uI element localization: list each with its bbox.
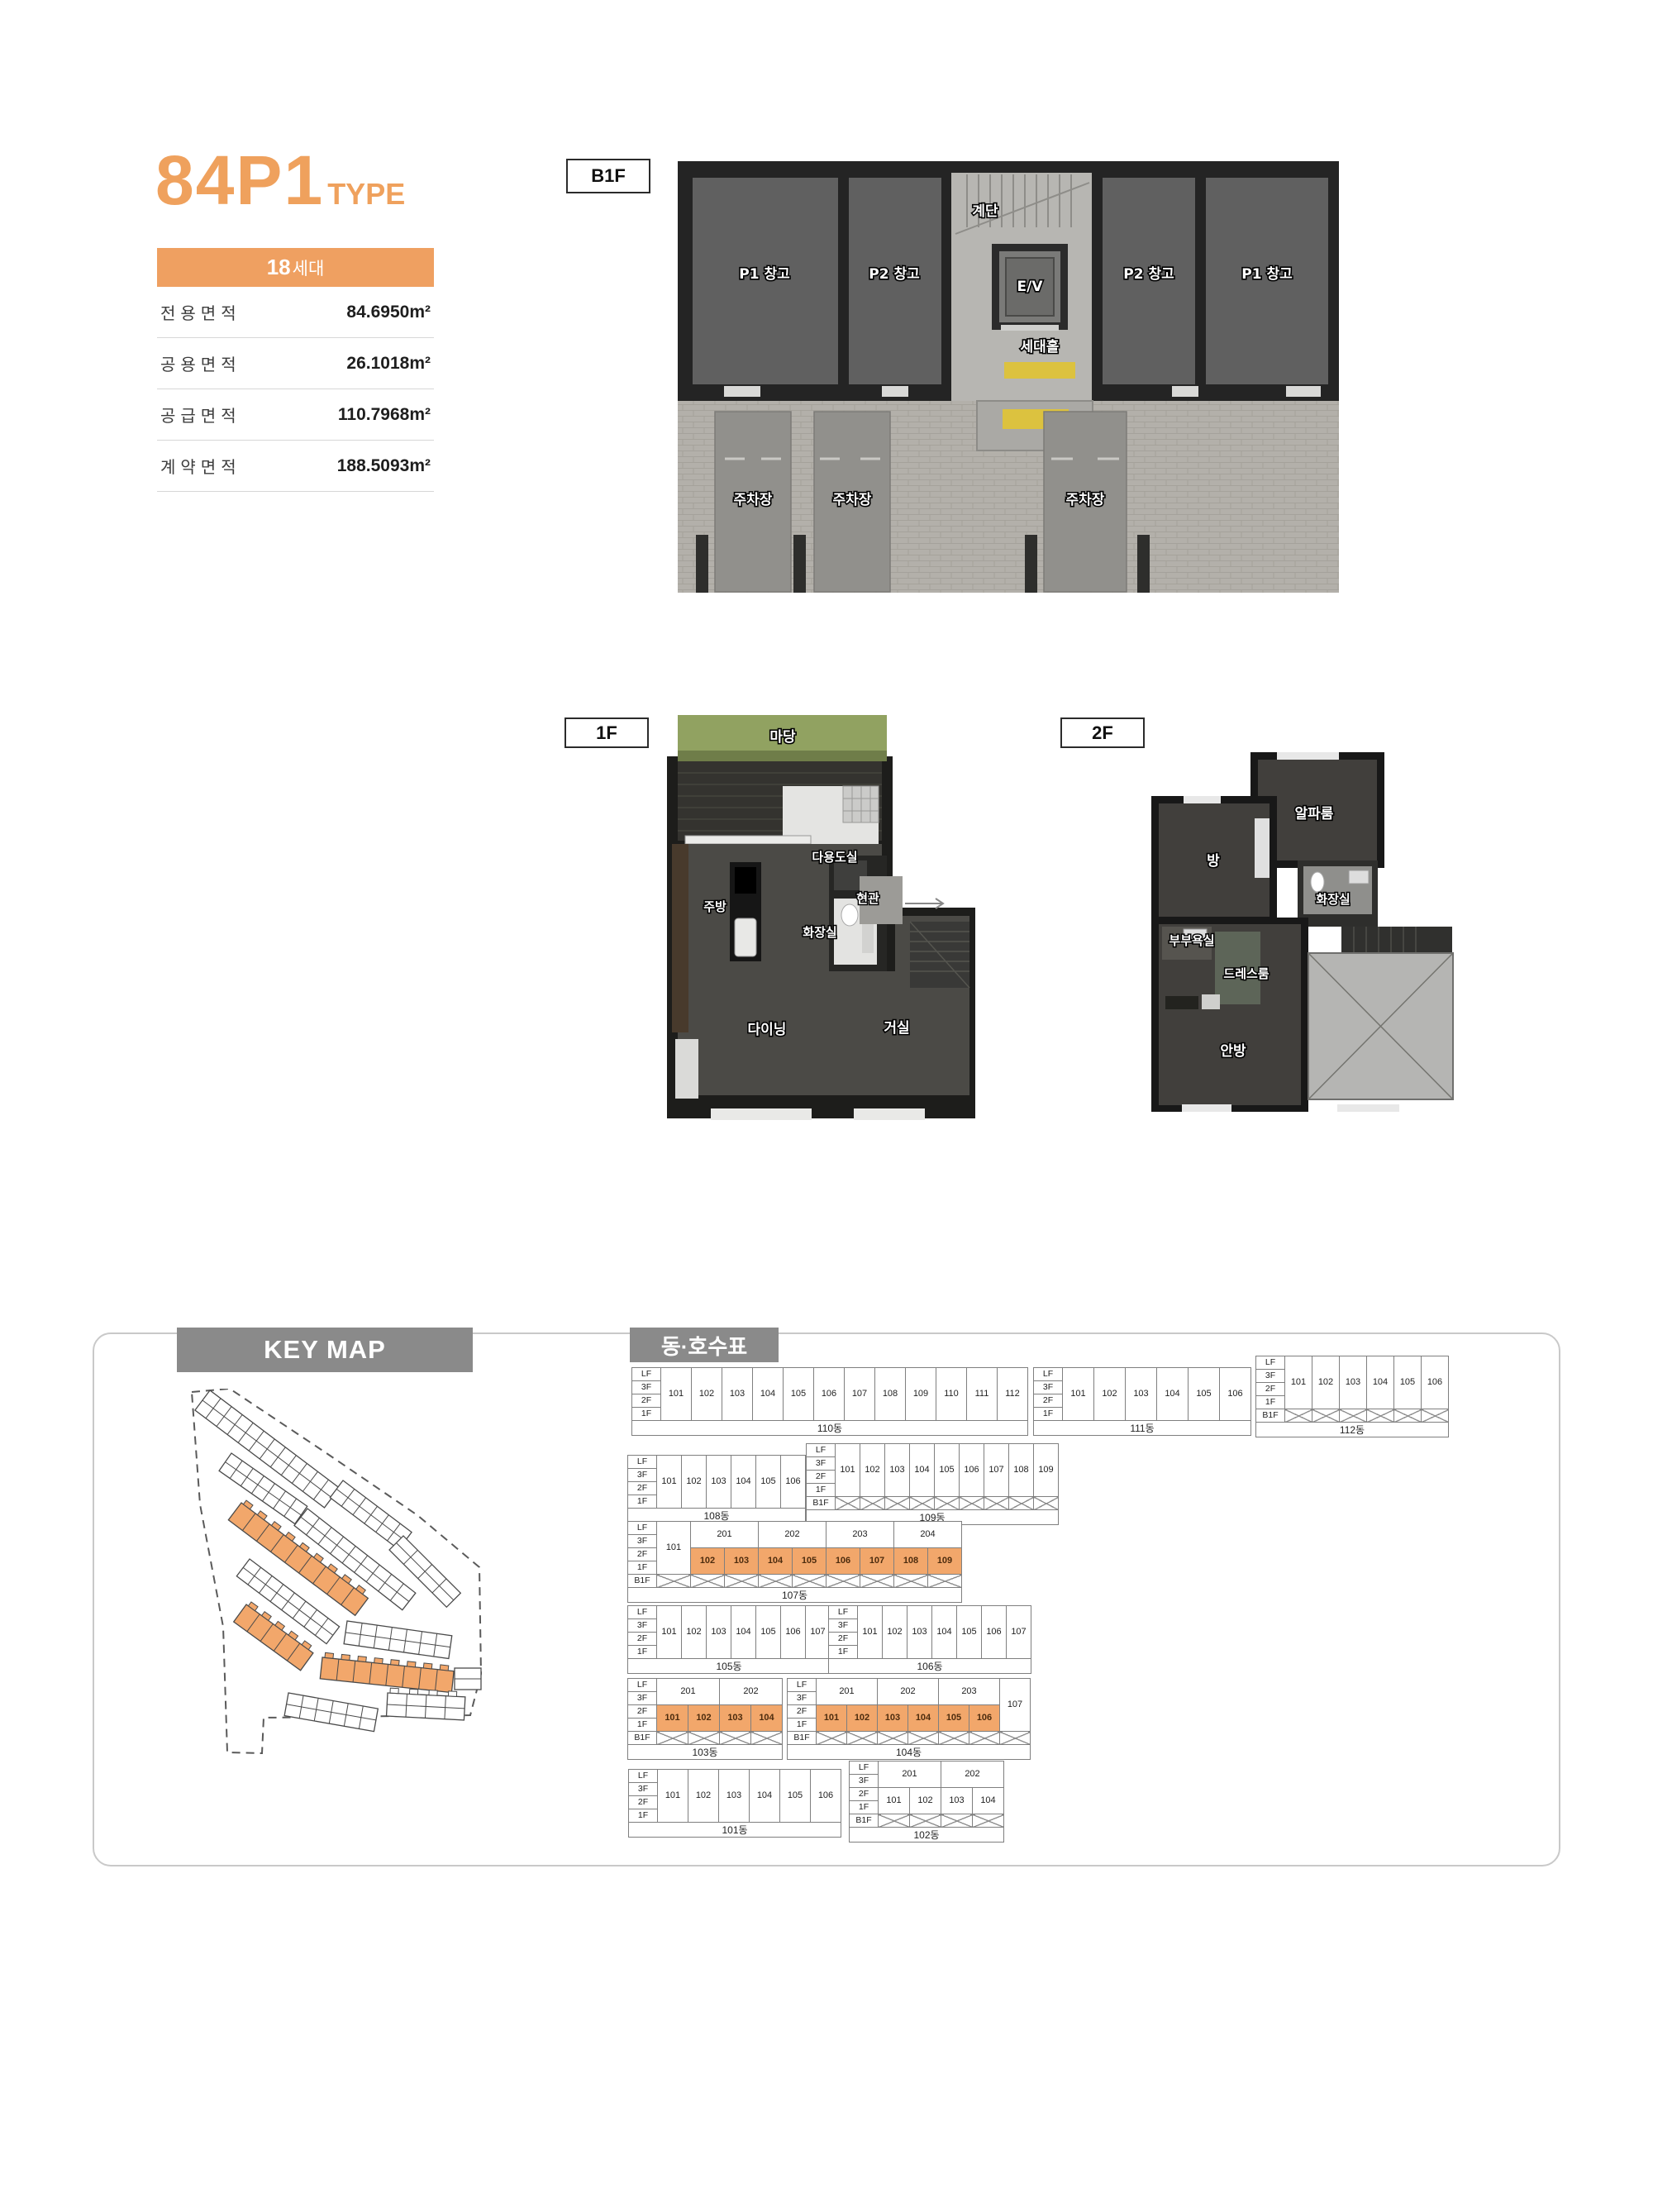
label-couple-bath: 부부욕실 [1169,933,1214,948]
crossed-cell [1009,1497,1034,1510]
unit-cell: 201 [657,1679,720,1705]
unit-cell: 108 [875,1368,906,1421]
area-value: 84.6950m² [346,303,431,322]
label-room: 방 [1207,853,1220,870]
building-name: 105동 [628,1659,831,1674]
area-row: 공용면적 26.1018m² [157,338,434,389]
unit-cell: 105 [784,1368,814,1421]
floor-label: 2F [807,1471,836,1484]
floor-label: 2F [1034,1394,1063,1408]
unit-cell: 105 [1394,1356,1422,1409]
crossed-cell [847,1732,878,1745]
window-gap [1286,386,1321,397]
floor-label: LF [628,1456,657,1469]
unit-cell: 201 [817,1679,878,1705]
unit-cell: 102 [1094,1368,1126,1421]
crossed-cell [657,1575,691,1588]
floor-label: 2F [829,1633,858,1646]
floor-label: LF [632,1368,661,1381]
building-name: 104동 [788,1745,1031,1760]
floor-label: LF [829,1606,858,1619]
area-label: 공급면적 [160,403,241,427]
building-name: 106동 [829,1659,1031,1674]
unit-cell: 104 [1367,1356,1394,1409]
unit-cell: 105 [756,1456,781,1509]
unit-cell: 104 [910,1444,935,1497]
household-count-unit: 세대 [293,250,325,288]
window-gap [1337,1104,1399,1112]
unit-cell: 102 [1312,1356,1340,1409]
floor-label: 1F [1034,1408,1063,1421]
type-title-suffix: TYPE [327,177,405,212]
area-row: 계약면적 188.5093m² [157,441,434,492]
unit-cell: 110 [936,1368,967,1421]
brochure-page: 84P1 TYPE 18 세대 전용면적 84.6950m² 공용면적 26.1… [0,0,1653,2212]
area-table: 전용면적 84.6950m² 공용면적 26.1018m² 공급면적 110.7… [157,287,434,492]
unit-cell: 204 [894,1522,962,1548]
unit-cell: 107 [845,1368,875,1421]
area-value: 26.1018m² [346,354,431,374]
unit-table-112: LF1011021031041051063F2F1FB1F112동 [1255,1356,1449,1437]
unit-cell: 109 [1034,1444,1059,1497]
unit-cell: 102 [691,1548,725,1575]
floor-label: 2F [628,1705,657,1719]
unit-cell: 107 [1007,1606,1031,1659]
label-p2-left: P2 창고 [869,266,920,283]
unit-cell: 101 [858,1606,883,1659]
floor-label: 1F [628,1495,657,1509]
label-hall: 세대홀 [1021,338,1060,355]
site-keymap [177,1389,541,1839]
toilet [1311,872,1324,892]
unit-table-102: LF2012023F2F1011021031041FB1F102동 [849,1761,1004,1843]
crossed-cell [1394,1409,1422,1423]
unit-table-104: LF2012022031073F2F1011021031041051061FB1… [787,1678,1031,1760]
unit-cell: 105 [756,1606,781,1659]
keymap-building [455,1668,481,1690]
crossed-cell [751,1732,783,1745]
crossed-cell [939,1732,969,1745]
building-name: 103동 [628,1745,783,1760]
unit-cell: 106 [1422,1356,1449,1409]
unit-cell: 105 [793,1548,826,1575]
unit-cell: 101 [817,1705,847,1732]
elevator-sill [1001,325,1059,331]
type-title: 84P1 TYPE [155,145,405,215]
floor-label: 3F [632,1381,661,1394]
area-label: 전용면적 [160,300,241,324]
label-parking1: 주차장 [734,492,773,508]
crossed-cell [860,1497,885,1510]
floor-label: B1F [850,1814,879,1828]
floor-label: 3F [1034,1381,1063,1394]
unit-cell: 101 [657,1522,691,1575]
window-sill [685,836,811,844]
crossed-cell [688,1732,720,1745]
unit-cell: 104 [731,1456,756,1509]
window-gap [724,386,760,397]
b1f-floorplan: 계단 P1 창고 P2 창고 E/V P2 창고 P1 창고 세대홀 주차장 주… [678,161,1339,595]
unit-cell: 202 [878,1679,939,1705]
floor-label: 3F [1256,1370,1285,1383]
label-dress: 드레스룸 [1223,966,1269,981]
unit-cell: 101 [1285,1356,1312,1409]
unit-cell: 104 [731,1606,756,1659]
crossed-cell [1340,1409,1367,1423]
floor-label: B1F [1256,1409,1285,1423]
unit-cell: 107 [806,1606,831,1659]
crossed-cell [1312,1409,1340,1423]
unit-cell: 104 [750,1770,780,1823]
entry-arrow-icon [905,899,943,908]
floor-label: 2F [632,1394,661,1408]
floor-label: 3F [850,1775,879,1788]
floor-label: 1F [629,1809,658,1823]
floor-label: 3F [628,1535,657,1548]
floor-label: LF [788,1679,817,1692]
crossed-cell [720,1732,751,1745]
unit-table-109: LF1011021031041051061071081093F2F1FB1F10… [806,1443,1059,1525]
unit-cell: 102 [688,1705,720,1732]
crossed-cell [878,1732,908,1745]
unit-cell: 104 [908,1705,939,1732]
unit-table-header: 동·호수표 [630,1328,779,1362]
unit-cell: 105 [957,1606,982,1659]
keymap-building [284,1693,378,1732]
crossed-cell [908,1732,939,1745]
unit-cell: 106 [811,1770,841,1823]
unit-table-110: LF1011021031041051061071081091101111123F… [631,1367,1028,1436]
label-stairs: 계단 [972,203,998,220]
unit-cell: 103 [1126,1368,1157,1421]
cabinet [1202,994,1220,1009]
unit-cell: 103 [907,1606,932,1659]
unit-cell: 107 [860,1548,894,1575]
crossed-cell [885,1497,910,1510]
storage-lower-left [675,1039,698,1099]
floor-label: LF [628,1522,657,1535]
building-name: 111동 [1034,1421,1251,1436]
floor-label: 3F [807,1457,836,1471]
unit-cell: 102 [847,1705,878,1732]
unit-cell: 105 [939,1705,969,1732]
unit-cell: 202 [720,1679,783,1705]
floor-label: 1F [628,1561,657,1575]
keymap-building [387,1688,466,1720]
unit-cell: 101 [657,1456,682,1509]
crossed-cell [860,1575,894,1588]
unit-cell: 103 [725,1548,759,1575]
sink [735,918,756,956]
unit-cell: 105 [780,1770,811,1823]
unit-cell: 201 [691,1522,759,1548]
unit-cell: 103 [878,1705,908,1732]
floor-label: 3F [829,1619,858,1633]
building-name: 107동 [628,1588,962,1603]
floor-label: 2F [628,1548,657,1561]
sink [1349,870,1369,884]
unit-cell: 107 [1000,1679,1031,1732]
unit-cell: 109 [906,1368,936,1421]
label-parking3: 주차장 [1066,492,1105,508]
unit-cell: 102 [860,1444,885,1497]
label-kitchen: 주방 [703,899,726,914]
window-gap [1182,1104,1231,1112]
floor-label: 1F [807,1484,836,1497]
window-gap [854,1108,925,1120]
floor-tag-2f: 2F [1060,717,1145,748]
floor-label: 3F [788,1692,817,1705]
unit-cell: 203 [826,1522,894,1548]
crossed-cell [1422,1409,1449,1423]
unit-cell: 104 [932,1606,957,1659]
window-gap [882,386,908,397]
building-name: 101동 [629,1823,841,1838]
floor-label: 2F [628,1482,657,1495]
unit-cell: 106 [814,1368,845,1421]
crossed-cell [759,1575,793,1588]
area-value: 110.7968m² [338,405,431,425]
crossed-cell [1367,1409,1394,1423]
label-p1-right: P1 창고 [1241,266,1293,283]
label-dining: 다이닝 [748,1022,787,1038]
label-utility: 다용도실 [812,850,857,865]
crossed-cell [836,1497,860,1510]
crossed-cell [1000,1732,1031,1745]
keymap-building [344,1621,452,1659]
floor-label: 1F [628,1646,657,1659]
crossed-cell [984,1497,1009,1510]
unit-cell: 103 [720,1705,751,1732]
unit-table-101: LF1011021031041051063F2F1F101동 [628,1769,841,1838]
unit-cell: 101 [1063,1368,1094,1421]
label-p2-right: P2 창고 [1123,266,1174,283]
keymap-unit-panel: KEY MAP 동·호수표 LF101102103104105106107108… [93,1332,1560,1866]
household-count-number: 18 [267,248,291,287]
unit-cell: 103 [941,1788,973,1814]
floor-label: 3F [628,1469,657,1482]
floor-label: 1F [788,1719,817,1732]
floor-tag-b1f: B1F [566,159,650,193]
crossed-cell [928,1575,962,1588]
unit-cell: 103 [1340,1356,1367,1409]
site-buildings [195,1390,481,1732]
window-gap [1184,796,1221,803]
unit-cell: 101 [657,1705,688,1732]
crossed-cell [935,1497,960,1510]
unit-cell: 102 [682,1456,707,1509]
unit-cell: 201 [879,1761,941,1788]
unit-cell: 101 [836,1444,860,1497]
floor-label: B1F [628,1575,657,1588]
label-bath: 화장실 [803,925,836,940]
unit-table-103: LF2012023F2F1011021031041FB1F103동 [627,1678,783,1760]
unit-cell: 102 [688,1770,719,1823]
household-count-badge: 18 세대 [157,248,434,287]
unit-cell: 106 [826,1548,860,1575]
crossed-cell [826,1575,860,1588]
unit-table-108: LF1011021031041051063F2F1F108동 [627,1455,806,1523]
unit-cell: 104 [751,1705,783,1732]
unit-cell: 106 [1220,1368,1251,1421]
unit-cell: 103 [719,1770,750,1823]
floor-label: 2F [629,1796,658,1809]
unit-cell: 106 [960,1444,984,1497]
unit-cell: 103 [722,1368,753,1421]
label-master: 안방 [1220,1043,1246,1060]
crossed-cell [894,1575,928,1588]
unit-table-107: LF1012012022032043F2F1021031041051061071… [627,1521,962,1603]
floor-label: 2F [628,1633,657,1646]
floor-label: 3F [628,1619,657,1633]
f1-floorplan: 마당 다용도실 주방 현관 화장실 다이닝 거실 [667,715,975,1120]
unit-cell: 105 [1189,1368,1220,1421]
unit-table-106: LF1011021031041051061073F2F1F106동 [828,1605,1031,1674]
floor-label: B1F [807,1497,836,1510]
crossed-cell [817,1732,847,1745]
label-living: 거실 [884,1020,909,1037]
crossed-cell [910,1814,941,1828]
crossed-cell [1285,1409,1312,1423]
unit-cell: 103 [885,1444,910,1497]
unit-cell: 108 [1009,1444,1034,1497]
crossed-cell [879,1814,910,1828]
unit-table-111: LF1011021031041051063F2F1F111동 [1033,1367,1251,1436]
unit-cell: 107 [984,1444,1009,1497]
floor-label: LF [850,1761,879,1775]
unit-cell: 104 [1157,1368,1189,1421]
label-entrance: 현관 [856,891,879,906]
area-label: 공용면적 [160,351,241,375]
crossed-cell [960,1497,984,1510]
crossed-cell [691,1575,725,1588]
floor-label: 1F [850,1801,879,1814]
area-label: 계약면적 [160,454,241,478]
crossed-cell [793,1575,826,1588]
type-title-main: 84P1 [155,145,324,215]
unit-cell: 202 [759,1522,826,1548]
unit-cell: 106 [969,1705,1000,1732]
unit-cell: 102 [692,1368,722,1421]
label-parking2: 주차장 [833,492,872,508]
unit-table-105: LF1011021031041051061073F2F1F105동 [627,1605,831,1674]
floor-label: 1F [628,1719,657,1732]
unit-cell: 101 [879,1788,910,1814]
unit-cell: 105 [935,1444,960,1497]
unit-cell: 102 [883,1606,907,1659]
crossed-cell [657,1732,688,1745]
unit-cell: 102 [910,1788,941,1814]
floor-label: B1F [628,1732,657,1745]
entry-mat-upper [1004,362,1075,379]
unit-cell: 106 [781,1456,806,1509]
floor-label: 1F [632,1408,661,1421]
crossed-cell [1034,1497,1059,1510]
label-yard: 마당 [769,729,796,746]
f2-floorplan: 알파룸 방 화장실 부부욕실 드레스룸 안방 [1132,748,1459,1116]
unit-cell: 104 [753,1368,784,1421]
unit-cell: 203 [939,1679,1000,1705]
window-gap [711,1108,812,1120]
unit-cell: 101 [658,1770,688,1823]
floor-label: 1F [1256,1396,1285,1409]
floor-label: B1F [788,1732,817,1745]
floor-label: LF [807,1444,836,1457]
unit-cell: 104 [759,1548,793,1575]
label-bath: 화장실 [1316,892,1350,907]
door-panel [1255,818,1270,878]
label-p1-left: P1 창고 [739,266,790,283]
unit-cell: 103 [707,1456,731,1509]
floor-label: LF [628,1606,657,1619]
building-name: 112동 [1256,1423,1449,1437]
crossed-cell [969,1732,1000,1745]
building-name: 102동 [850,1828,1004,1843]
keymap-building-highlighted [320,1652,454,1693]
unit-cell: 111 [967,1368,998,1421]
unit-cell: 102 [682,1606,707,1659]
stove [735,867,756,894]
unit-cell: 106 [982,1606,1007,1659]
crossed-cell [910,1497,935,1510]
floor-label: LF [629,1770,658,1783]
unit-cell: 101 [657,1606,682,1659]
label-ev: E/V [1017,279,1044,295]
area-row: 전용면적 84.6950m² [157,287,434,338]
floor-label: 1F [829,1646,858,1659]
crossed-cell [725,1575,759,1588]
crossed-cell [973,1814,1004,1828]
floor-label: LF [628,1679,657,1692]
dresser [1165,996,1198,1009]
floor-label: 2F [850,1788,879,1801]
crossed-cell [941,1814,973,1828]
floor-label: LF [1256,1356,1285,1370]
floor-label: 2F [1256,1383,1285,1396]
area-value: 188.5093m² [337,456,431,476]
unit-cell: 101 [661,1368,692,1421]
building-name: 110동 [632,1421,1028,1436]
side-closet [672,844,688,1032]
unit-cell: 104 [973,1788,1004,1814]
toilet [841,904,858,926]
unit-cell: 108 [894,1548,928,1575]
unit-cell: 109 [928,1548,962,1575]
unit-cell: 112 [998,1368,1028,1421]
floor-label: 3F [629,1783,658,1796]
yard-edge [678,751,887,761]
window-gap [1277,752,1339,760]
floor-label: LF [1034,1368,1063,1381]
unit-cell: 106 [781,1606,806,1659]
floor-label: 2F [788,1705,817,1719]
window-gap [1172,386,1198,397]
unit-cell: 103 [707,1606,731,1659]
label-alpha: 알파룸 [1295,806,1334,822]
floor-label: 3F [628,1692,657,1705]
keymap-header: KEY MAP [177,1328,473,1372]
floor-tag-1f: 1F [564,717,649,748]
unit-cell: 202 [941,1761,1004,1788]
area-row: 공급면적 110.7968m² [157,389,434,441]
